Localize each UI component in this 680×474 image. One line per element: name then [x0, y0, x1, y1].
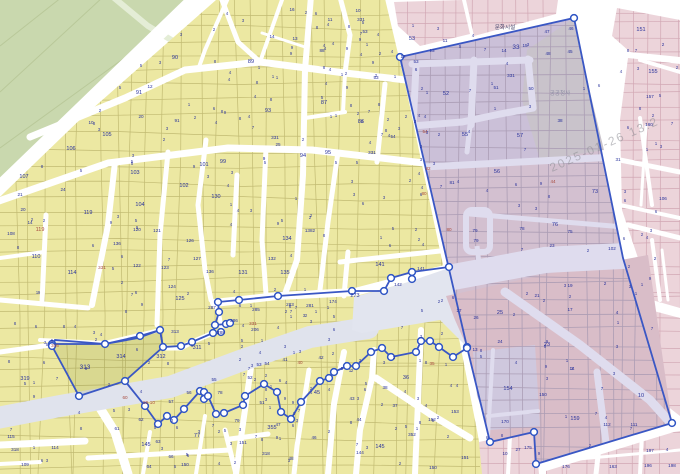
svg-text:40: 40 — [297, 360, 303, 365]
svg-text:331: 331 — [98, 265, 106, 270]
svg-text:109: 109 — [21, 462, 29, 467]
svg-text:153: 153 — [451, 409, 459, 414]
svg-text:24: 24 — [497, 339, 503, 344]
svg-text:124: 124 — [168, 284, 176, 289]
svg-text:2: 2 — [654, 256, 657, 261]
svg-text:141: 141 — [417, 266, 425, 271]
svg-text:352: 352 — [408, 432, 416, 437]
svg-text:63: 63 — [155, 439, 161, 444]
svg-text:91: 91 — [136, 90, 142, 96]
svg-text:53: 53 — [413, 59, 419, 64]
svg-text:35: 35 — [429, 361, 435, 366]
svg-text:114: 114 — [68, 270, 77, 276]
svg-text:23: 23 — [549, 243, 555, 248]
svg-text:151: 151 — [636, 27, 645, 33]
svg-text:154: 154 — [503, 386, 512, 392]
svg-text:81: 81 — [449, 180, 455, 185]
svg-text:57: 57 — [168, 399, 174, 404]
svg-text:318: 318 — [262, 451, 270, 456]
svg-text:130: 130 — [211, 194, 220, 200]
svg-text:27: 27 — [515, 447, 521, 452]
svg-text:1382: 1382 — [305, 228, 316, 233]
svg-text:4: 4 — [616, 310, 619, 315]
svg-text:151: 151 — [461, 455, 469, 460]
svg-text:17: 17 — [567, 307, 573, 312]
svg-text:150: 150 — [539, 392, 547, 397]
svg-text:134: 134 — [282, 236, 291, 242]
svg-text:313: 313 — [171, 329, 179, 334]
svg-text:126: 126 — [186, 238, 194, 243]
svg-text:13: 13 — [429, 48, 435, 53]
svg-text:102: 102 — [179, 183, 188, 189]
svg-text:314: 314 — [116, 354, 125, 360]
svg-text:145: 145 — [375, 444, 384, 450]
svg-text:136: 136 — [206, 269, 214, 274]
svg-text:53: 53 — [362, 29, 368, 34]
svg-text:145: 145 — [141, 442, 150, 448]
svg-text:355: 355 — [267, 425, 276, 431]
svg-text:312: 312 — [156, 354, 165, 360]
svg-text:131: 131 — [238, 270, 247, 276]
svg-text:37: 37 — [392, 403, 398, 408]
svg-text:79: 79 — [472, 228, 478, 233]
svg-text:14: 14 — [501, 48, 507, 53]
svg-text:104: 104 — [135, 202, 144, 208]
svg-text:287: 287 — [208, 305, 216, 310]
svg-text:170: 170 — [501, 419, 509, 424]
svg-text:174: 174 — [329, 299, 337, 304]
svg-text:10: 10 — [638, 393, 644, 399]
svg-text:60: 60 — [122, 395, 128, 400]
svg-text:62: 62 — [138, 417, 144, 422]
svg-text:54: 54 — [390, 134, 396, 139]
svg-text:43: 43 — [349, 396, 355, 401]
svg-text:93: 93 — [265, 108, 271, 114]
svg-text:66: 66 — [168, 454, 174, 459]
svg-text:163: 163 — [609, 464, 617, 469]
svg-text:135: 135 — [280, 270, 289, 276]
svg-text:38: 38 — [382, 385, 388, 390]
svg-text:281: 281 — [306, 303, 314, 308]
svg-text:106: 106 — [66, 146, 75, 152]
svg-text:105: 105 — [102, 132, 111, 138]
svg-text:55: 55 — [211, 377, 217, 382]
svg-text:21: 21 — [17, 192, 23, 197]
svg-text:56: 56 — [186, 390, 192, 395]
svg-text:25: 25 — [275, 142, 281, 147]
svg-text:53: 53 — [256, 362, 262, 367]
svg-text:196: 196 — [644, 463, 652, 468]
svg-text:89: 89 — [248, 59, 254, 65]
svg-text:13: 13 — [472, 347, 478, 352]
svg-text:31: 31 — [615, 157, 621, 162]
svg-text:157: 157 — [646, 94, 654, 99]
svg-text:78: 78 — [519, 226, 525, 231]
svg-text:3: 3 — [629, 284, 632, 289]
svg-text:91: 91 — [174, 118, 180, 123]
svg-text:10: 10 — [355, 8, 361, 13]
svg-text:64: 64 — [146, 464, 152, 469]
svg-text:102: 102 — [608, 246, 616, 251]
svg-text:90: 90 — [172, 55, 178, 61]
svg-text:176: 176 — [562, 464, 570, 469]
svg-text:56: 56 — [494, 169, 500, 175]
svg-text:51: 51 — [493, 85, 499, 90]
svg-text:141: 141 — [375, 262, 384, 268]
svg-text:14: 14 — [269, 34, 275, 39]
svg-text:150: 150 — [429, 465, 437, 470]
svg-text:2: 2 — [604, 281, 607, 286]
svg-text:311: 311 — [193, 345, 202, 351]
svg-text:99: 99 — [220, 159, 226, 165]
svg-text:20: 20 — [138, 114, 144, 119]
svg-text:54: 54 — [264, 361, 270, 366]
svg-text:79: 79 — [473, 238, 479, 243]
svg-text:103: 103 — [130, 170, 139, 176]
svg-text:46: 46 — [568, 26, 574, 31]
svg-text:80: 80 — [446, 227, 452, 232]
svg-text:110: 110 — [32, 254, 41, 260]
svg-text:132: 132 — [268, 256, 276, 261]
svg-text:198: 198 — [668, 463, 676, 468]
svg-text:82: 82 — [425, 166, 431, 171]
svg-text:285: 285 — [252, 307, 260, 312]
svg-text:125: 125 — [175, 296, 184, 302]
svg-text:114: 114 — [51, 445, 59, 450]
svg-text:108: 108 — [7, 231, 15, 236]
svg-text:155: 155 — [648, 69, 657, 75]
svg-text:318: 318 — [11, 447, 19, 452]
svg-text:150: 150 — [181, 462, 189, 467]
svg-text:44: 44 — [356, 417, 362, 422]
svg-text:13: 13 — [292, 36, 298, 41]
svg-text:45: 45 — [567, 49, 573, 54]
svg-text:7: 7 — [601, 386, 604, 391]
svg-text:75: 75 — [567, 229, 573, 234]
svg-text:41: 41 — [282, 357, 288, 362]
svg-text:27: 27 — [456, 308, 462, 313]
svg-text:119: 119 — [36, 227, 45, 233]
svg-text:121: 121 — [153, 228, 161, 233]
svg-text:79: 79 — [234, 418, 240, 423]
svg-text:316: 316 — [51, 343, 59, 348]
svg-text:115: 115 — [7, 434, 15, 439]
svg-text:4: 4 — [666, 447, 669, 452]
svg-text:107: 107 — [19, 174, 28, 180]
svg-text:206: 206 — [251, 327, 259, 332]
svg-text:73: 73 — [592, 189, 598, 195]
svg-text:76: 76 — [552, 222, 558, 228]
svg-text:61: 61 — [114, 426, 120, 431]
svg-text:12: 12 — [147, 84, 153, 89]
svg-text:151: 151 — [239, 440, 247, 445]
svg-text:36: 36 — [403, 375, 409, 381]
svg-text:6: 6 — [415, 67, 418, 72]
svg-text:50: 50 — [528, 86, 534, 91]
svg-text:21: 21 — [534, 293, 540, 298]
svg-text:112: 112 — [603, 422, 611, 427]
svg-text:44: 44 — [550, 179, 556, 184]
svg-text:159: 159 — [570, 416, 579, 422]
svg-text:20: 20 — [20, 207, 26, 212]
svg-text:95: 95 — [325, 150, 331, 156]
svg-text:331: 331 — [271, 135, 279, 140]
svg-text:144: 144 — [356, 450, 364, 455]
svg-text:331: 331 — [249, 321, 257, 326]
svg-text:10: 10 — [502, 451, 508, 456]
svg-text:94: 94 — [300, 153, 306, 159]
svg-text:45: 45 — [314, 390, 320, 396]
svg-text:38: 38 — [557, 118, 563, 123]
svg-text:273: 273 — [350, 293, 359, 299]
svg-text:119: 119 — [84, 210, 93, 216]
svg-text:331: 331 — [507, 73, 515, 78]
svg-text:52: 52 — [443, 91, 449, 97]
svg-text:106: 106 — [659, 196, 667, 201]
svg-text:78: 78 — [217, 390, 223, 395]
svg-text:12: 12 — [400, 54, 406, 59]
svg-text:52: 52 — [247, 375, 253, 380]
svg-text:11: 11 — [443, 38, 448, 43]
svg-text:123: 123 — [161, 265, 169, 270]
svg-text:286: 286 — [230, 318, 238, 323]
svg-text:26: 26 — [473, 315, 479, 320]
svg-text:175: 175 — [524, 445, 532, 450]
svg-text:101: 101 — [199, 162, 208, 168]
svg-text:160: 160 — [645, 122, 653, 127]
svg-text:42: 42 — [318, 355, 324, 360]
svg-text:46: 46 — [311, 435, 317, 440]
svg-text:24: 24 — [60, 187, 66, 192]
svg-text:공공청사: 공공청사 — [550, 89, 570, 97]
svg-text:2: 2 — [662, 42, 665, 47]
svg-text:25: 25 — [497, 310, 503, 316]
svg-text:197: 197 — [646, 448, 654, 453]
svg-text:53: 53 — [409, 36, 415, 42]
svg-text:57: 57 — [517, 133, 523, 139]
svg-text:19: 19 — [567, 283, 573, 288]
svg-text:16: 16 — [289, 7, 295, 12]
svg-text:87: 87 — [321, 100, 327, 106]
svg-text:33: 33 — [512, 44, 520, 51]
svg-text:142: 142 — [394, 282, 402, 287]
svg-text:48: 48 — [545, 51, 551, 56]
svg-text:127: 127 — [193, 256, 201, 261]
svg-text:331: 331 — [368, 150, 376, 155]
svg-text:80: 80 — [421, 191, 427, 196]
svg-text:122: 122 — [133, 263, 141, 268]
svg-text:문화시설: 문화시설 — [495, 23, 515, 31]
svg-text:47: 47 — [544, 29, 550, 34]
svg-text:59-10: 59-10 — [143, 400, 155, 405]
svg-text:136: 136 — [113, 241, 121, 246]
